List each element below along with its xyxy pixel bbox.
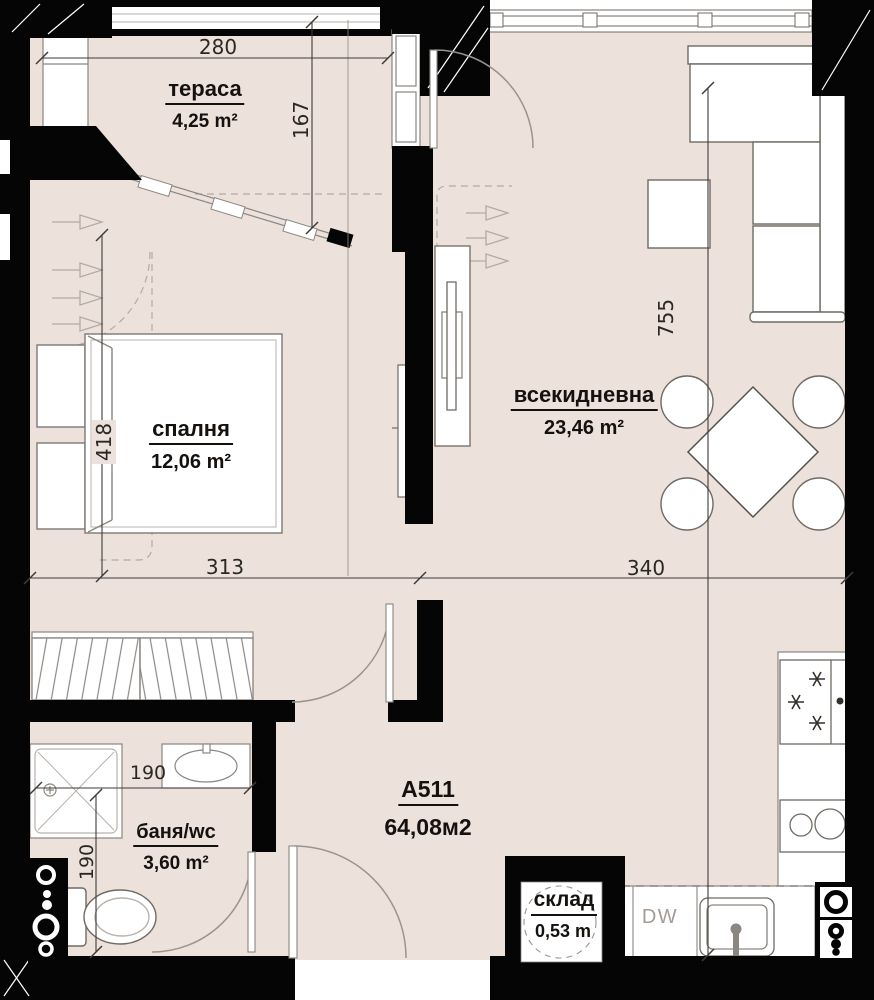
- storage-area: 0,53 m: [524, 921, 602, 942]
- riser-shaft-icon: [28, 858, 68, 964]
- bedroom-area: 12,06 m²: [149, 452, 233, 472]
- dim-terrace-width: 280: [199, 35, 237, 59]
- dim-terrace-depth: 167: [289, 101, 313, 139]
- floor-plan: тераса 4,25 m² спалня 12,06 m² всекиднев…: [0, 0, 874, 1000]
- dining-set: [661, 376, 845, 530]
- toilet: [58, 888, 156, 946]
- dim-bedroom-depth: 418: [92, 420, 116, 464]
- living-label: всекидневна 23,46 m²: [511, 384, 658, 438]
- living-area: 23,46 m²: [511, 418, 658, 438]
- bath-label: баня/wc 3,60 m²: [133, 822, 218, 873]
- dim-bath-depth: 190: [76, 844, 98, 880]
- bathroom-sink: [162, 744, 250, 788]
- storage-label: склад: [524, 888, 604, 916]
- apartment-area: 64,08м2: [384, 816, 471, 839]
- wardrobe: [32, 632, 253, 700]
- apartment-label: A511 64,08м2: [384, 778, 471, 839]
- shower: [30, 744, 122, 838]
- kitchen-sink: [700, 898, 774, 956]
- terrace-label: тераса 4,25 m²: [165, 78, 244, 131]
- bedroom-label: спалня 12,06 m²: [149, 418, 233, 472]
- terrace-french-door: [392, 30, 420, 148]
- bath-area: 3,60 m²: [133, 854, 218, 873]
- apartment-code: A511: [398, 778, 458, 806]
- floor-plan-drawing: [0, 0, 874, 1000]
- bedroom-name: спалня: [149, 418, 233, 445]
- terrace-name: тераса: [165, 78, 244, 105]
- bath-name: баня/wc: [133, 822, 218, 847]
- tv-cabinet: [435, 246, 470, 446]
- dim-living-depth: 755: [654, 299, 678, 337]
- oven: [780, 800, 846, 852]
- storage-name: склад: [531, 888, 598, 916]
- dim-bath-width: 190: [130, 762, 166, 784]
- living-name: всекидневна: [511, 384, 658, 411]
- dim-living-width: 340: [627, 556, 665, 580]
- coffee-table: [648, 180, 710, 248]
- terrace-cabinet: [43, 34, 88, 130]
- living-window: [487, 10, 812, 32]
- terrace-area: 4,25 m²: [165, 112, 244, 131]
- kitchen-panel-icons: [820, 887, 852, 958]
- dishwasher-label: DW: [642, 906, 678, 929]
- dim-bedroom-width: 313: [206, 555, 244, 579]
